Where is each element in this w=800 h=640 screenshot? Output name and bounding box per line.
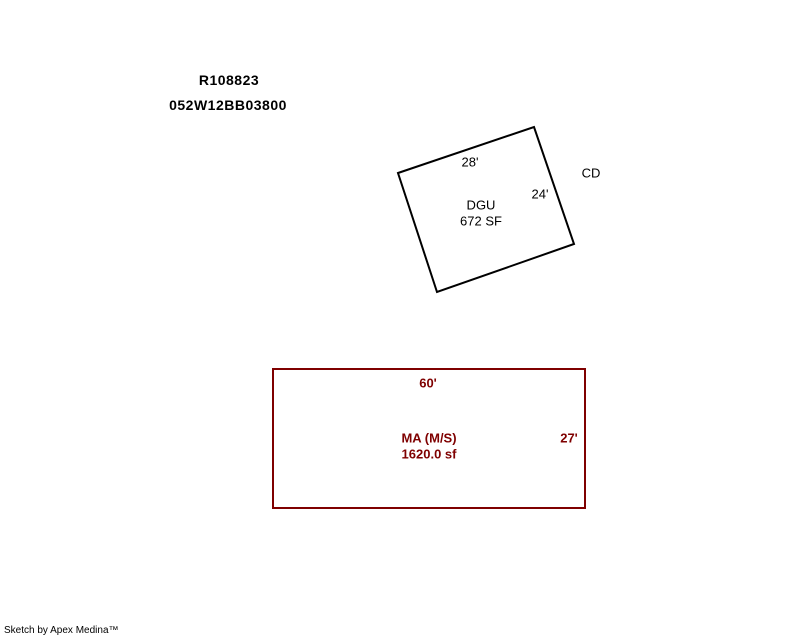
sketch-shapes-layer bbox=[0, 0, 800, 640]
ma-area-label: 1620.0 sf bbox=[402, 448, 457, 461]
sketch-credit-label: Sketch by Apex Medina™ bbox=[4, 626, 119, 636]
dgu-side-note-label: CD bbox=[582, 167, 601, 180]
dgu-top-dimension-label: 28' bbox=[462, 156, 479, 169]
parcel-id-label: R108823 bbox=[199, 73, 259, 87]
ma-right-dimension-label: 27' bbox=[560, 432, 578, 445]
dgu-name-label: DGU bbox=[467, 199, 496, 212]
dgu-area-label: 672 SF bbox=[460, 215, 502, 228]
ma-name-label: MA (M/S) bbox=[401, 432, 456, 445]
ma-top-dimension-label: 60' bbox=[419, 377, 437, 390]
property-sketch-canvas: R108823 052W12BB03800 28' CD 24' DGU 672… bbox=[0, 0, 800, 640]
dgu-right-dimension-label: 24' bbox=[532, 188, 549, 201]
map-taxlot-label: 052W12BB03800 bbox=[169, 98, 287, 112]
